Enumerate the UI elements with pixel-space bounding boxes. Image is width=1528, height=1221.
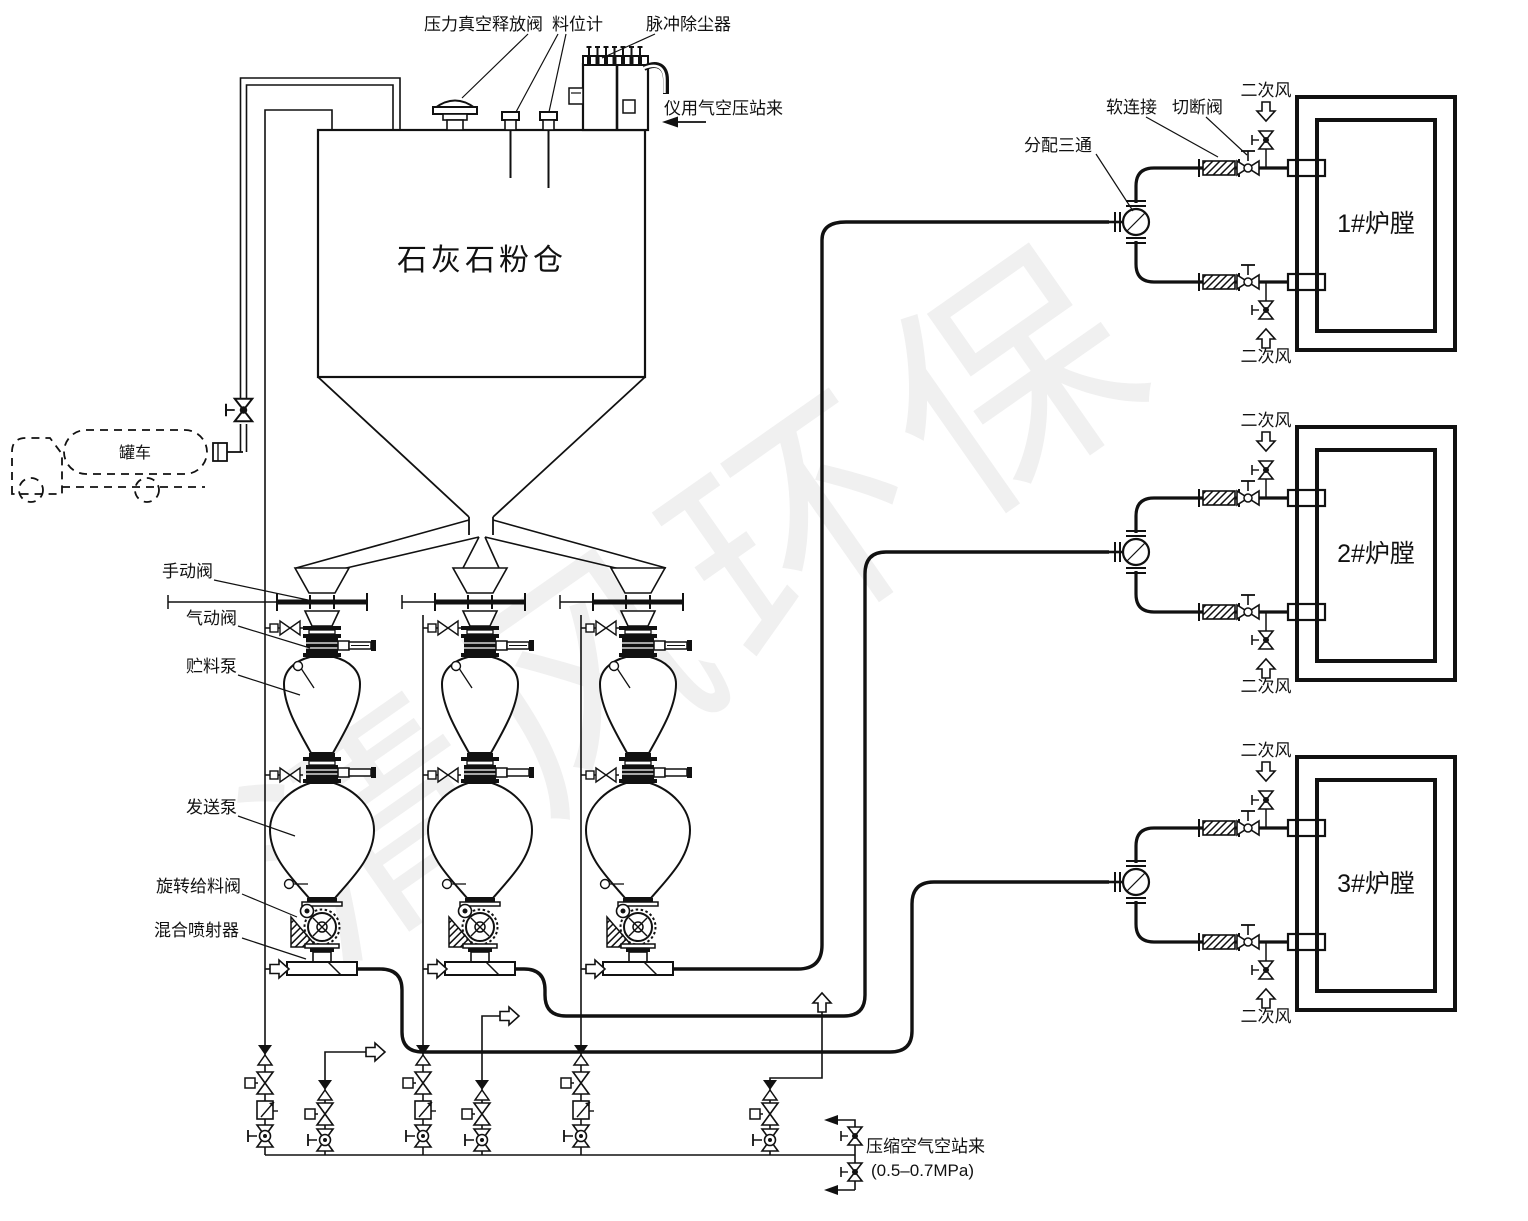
manual-valve-label: 手动阀 — [162, 562, 213, 581]
furnace-3-label: 3#炉膛 — [1337, 870, 1415, 898]
distribution-tee-label: 分配三通 — [1024, 136, 1092, 155]
diagram-canvas: 清风环保 石灰石粉仓 — [0, 0, 1528, 1221]
air-valve-stack — [305, 1080, 333, 1151]
booster-air-arrow — [813, 993, 831, 1012]
secondary-air-label: 二次风 — [1241, 677, 1292, 696]
furnace-1-label: 1#炉膛 — [1337, 210, 1415, 238]
pneumatic-valve-label: 气动阀 — [186, 609, 237, 628]
secondary-air-label: 二次风 — [1241, 1007, 1292, 1026]
tank-truck — [12, 430, 207, 502]
storage-pump-label: 贮料泵 — [186, 657, 237, 676]
furnace-2-label: 2#炉膛 — [1337, 540, 1415, 568]
secondary-air-label: 二次风 — [1241, 411, 1292, 430]
secondary-air-label: 二次风 — [1241, 81, 1292, 100]
pressure-vacuum-relief-valve-icon — [433, 101, 477, 131]
pulse-dust-collector-icon — [569, 47, 666, 130]
silo-label: 石灰石粉仓 — [397, 244, 567, 277]
air-valve-stack — [245, 1045, 278, 1147]
compressed-air-pressure-label: (0.5–0.7MPa) — [871, 1161, 974, 1180]
secondary-air-label: 二次风 — [1241, 741, 1292, 760]
level-gauge-label: 料位计 — [552, 15, 603, 34]
sending-pump-label: 发送泵 — [186, 798, 237, 817]
level-gauge-icons — [502, 112, 557, 188]
soft-connection-label: 软连接 — [1106, 98, 1157, 117]
mixing-ejector-label: 混合喷射器 — [154, 921, 239, 940]
instrument-air-label: 仪用气空压站来 — [664, 99, 783, 118]
cutoff-valve-label: 切断阀 — [1172, 98, 1223, 117]
compressed-air-source-label: 压缩空气空站来 — [866, 1137, 985, 1156]
air-valve-stack — [462, 1080, 490, 1151]
process-flow-diagram-page: 清风环保 石灰石粉仓 — [0, 0, 1528, 1221]
air-valve-stack — [403, 1045, 436, 1147]
secondary-air-label: 二次风 — [1241, 347, 1292, 366]
rotary-feeder-label: 旋转给料阀 — [156, 877, 241, 896]
truck-fill-line — [213, 78, 400, 461]
air-valve-stack — [561, 1045, 594, 1147]
pulse-filter-label: 脉冲除尘器 — [646, 15, 731, 34]
air-valve-stack — [750, 1080, 778, 1151]
truck-label: 罐车 — [119, 444, 151, 462]
instrument-air-arrow — [662, 117, 706, 128]
booster-air-arrow — [366, 1043, 385, 1061]
booster-air-arrow — [500, 1007, 519, 1025]
pvrv-label: 压力真空释放阀 — [424, 15, 543, 34]
